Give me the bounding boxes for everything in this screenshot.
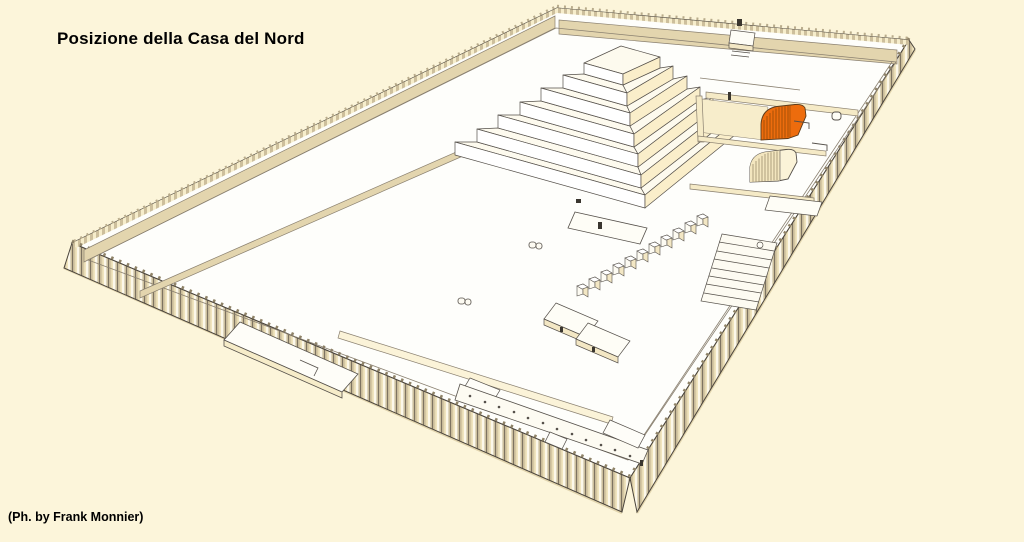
column-stump [757, 242, 763, 248]
serdab-box [598, 222, 602, 229]
attribution-note: (Ph. by Frank Monnier) [8, 510, 143, 524]
entrance-door [640, 460, 643, 466]
page-title: Posizione della Casa del Nord [57, 29, 305, 49]
pyramid-complex-diagram [0, 0, 1024, 542]
horseshoe-mark [832, 112, 841, 120]
wall-door-mark [728, 92, 731, 100]
serdab-statue-box [576, 199, 581, 203]
screenshot-canvas: Posizione della Casa del Nord (Ph. by Fr… [0, 0, 1024, 542]
altar-door [737, 19, 742, 26]
